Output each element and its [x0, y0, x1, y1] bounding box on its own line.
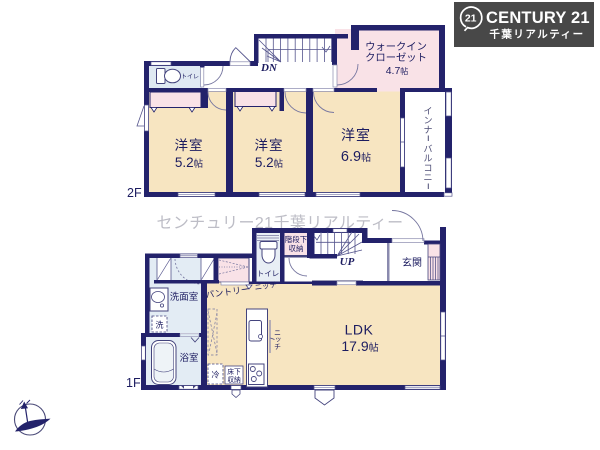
svg-text:洋室: 洋室 [255, 137, 284, 153]
svg-text:コ: コ [423, 163, 432, 173]
svg-text:1F: 1F [126, 376, 141, 390]
svg-text:千葉リアルティー: 千葉リアルティー [489, 28, 584, 41]
svg-text:収納: 収納 [227, 375, 241, 384]
svg-text:ル: ル [423, 154, 432, 164]
svg-text:洋室: 洋室 [341, 127, 371, 143]
svg-text:洋室: 洋室 [175, 137, 204, 153]
svg-text:床下: 床下 [227, 367, 241, 376]
svg-text:冷: 冷 [212, 370, 220, 380]
svg-text:ニッチ: ニッチ [274, 329, 282, 350]
svg-text:浴室: 浴室 [179, 352, 198, 364]
svg-text:イ: イ [423, 106, 432, 116]
svg-text:トイレ: トイレ [181, 75, 199, 81]
svg-text:LDK: LDK [345, 322, 374, 338]
svg-text:21: 21 [465, 12, 477, 24]
svg-text:ナ: ナ [423, 125, 432, 135]
svg-text:UP: UP [340, 256, 355, 268]
svg-text:DN: DN [260, 62, 278, 74]
svg-text:トイレ: トイレ [257, 269, 280, 278]
svg-text:4.7帖: 4.7帖 [386, 65, 409, 77]
svg-text:洗面室: 洗面室 [170, 291, 199, 303]
svg-text:ニ: ニ [423, 173, 432, 183]
svg-text:クローゼット: クローゼット [365, 52, 427, 64]
svg-text:ウォークイン: ウォークイン [365, 41, 427, 53]
svg-text:玄関: 玄関 [402, 256, 422, 269]
svg-text:2F: 2F [127, 186, 142, 200]
svg-text:CENTURY 21: CENTURY 21 [486, 9, 590, 27]
svg-text:収納: 収納 [289, 243, 304, 253]
svg-text:バ: バ [423, 144, 432, 154]
svg-text:ン: ン [423, 116, 432, 126]
svg-text:洗: 洗 [156, 320, 164, 330]
svg-text:階段下: 階段下 [285, 234, 308, 244]
